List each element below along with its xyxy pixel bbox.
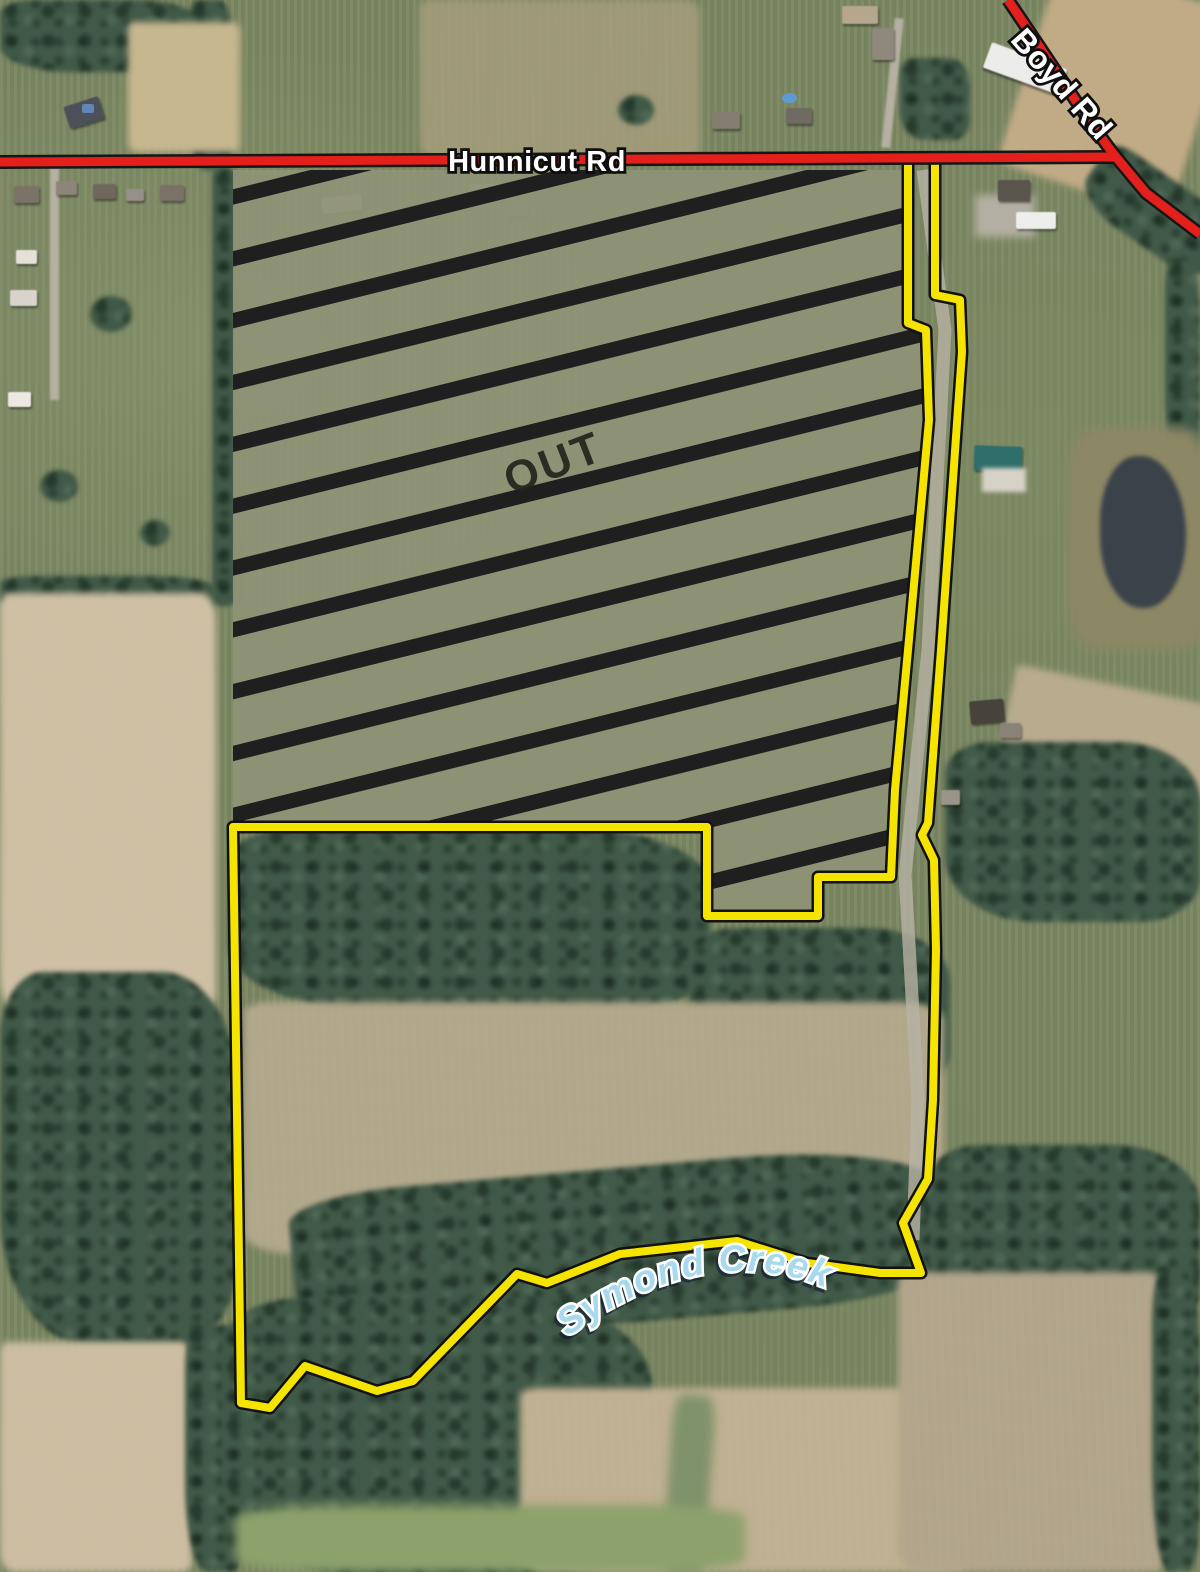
hunnicut-road-label: Hunnicut Rd bbox=[448, 146, 626, 178]
map-overlay: OUT Hunnicut Rd Boyd Rd Symond Creek bbox=[0, 0, 1200, 1572]
aerial-map: OUT Hunnicut Rd Boyd Rd Symond Creek bbox=[0, 0, 1200, 1572]
boyd-road-label: Boyd Rd bbox=[1004, 21, 1120, 147]
creek-label: Symond Creek bbox=[549, 1238, 840, 1344]
excluded-area-hatch bbox=[233, 170, 929, 916]
